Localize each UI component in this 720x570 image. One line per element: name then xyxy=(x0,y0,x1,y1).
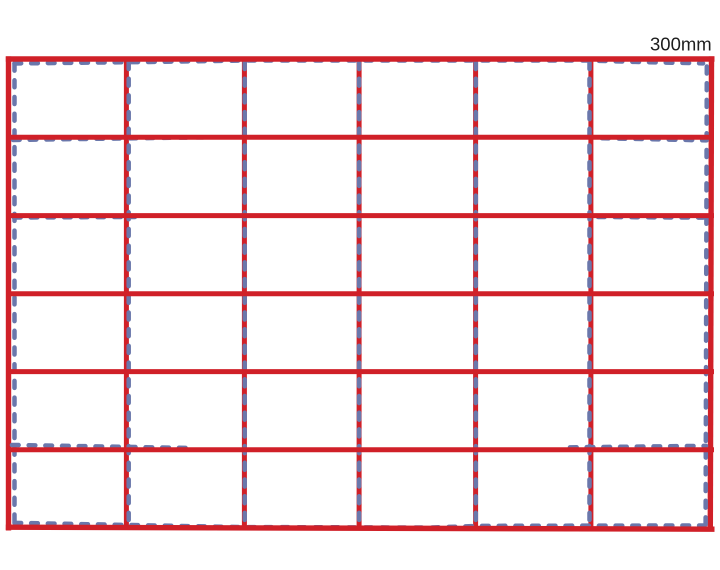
svg-text:300mm: 300mm xyxy=(650,34,712,55)
